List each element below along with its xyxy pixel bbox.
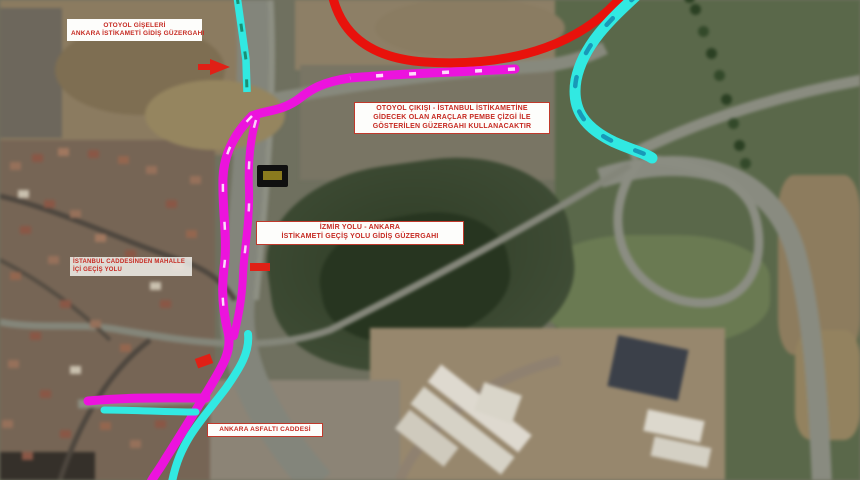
closure-arrow-1 (198, 59, 230, 75)
label-center-route-line1: İZMİR YOLU - ANKARA (261, 224, 459, 233)
route-cyan-top-segment (237, 0, 247, 92)
label-top-left: OTOYOL GİŞELERİ ANKARA İSTİKAMETİ GİDİŞ … (67, 19, 202, 41)
label-center-route-line2: İSTİKAMETİ GEÇİŞ YOLU GİDİŞ GÜZERGAHI (261, 233, 459, 242)
map-viewport[interactable]: OTOYOL GİŞELERİ ANKARA İSTİKAMETİ GİDİŞ … (0, 0, 860, 480)
label-detour-note-line1: OTOYOL ÇIKIŞI - İSTANBUL İSTİKAMETİNE (359, 105, 545, 114)
label-center-route: İZMİR YOLU - ANKARA İSTİKAMETİ GEÇİŞ YOL… (256, 221, 464, 245)
route-detour-magenta-right (234, 120, 256, 336)
route-cyan-lower-branch (104, 410, 196, 412)
label-detour-note-line3: GÖSTERİLEN GÜZERGAHI KULLANACAKTIR (359, 123, 545, 132)
label-street: ANKARA ASFALTI CADDESİ (207, 423, 323, 437)
label-detour-note: OTOYOL ÇIKIŞI - İSTANBUL İSTİKAMETİNE Gİ… (354, 102, 550, 134)
km-sign-icon (257, 165, 288, 187)
closure-arrow-2 (250, 263, 270, 271)
label-top-left-line1: OTOYOL GİŞELERİ (71, 22, 198, 30)
label-neighborhood-line2: İÇİ GEÇİŞ YOLU (73, 267, 189, 275)
closure-arrow-3 (195, 354, 213, 369)
label-street-line1: ANKARA ASFALTI CADDESİ (212, 426, 318, 434)
label-top-left-line2: ANKARA İSTİKAMETİ GİDİŞ GÜZERGAHI (71, 30, 198, 38)
label-neighborhood: İSTANBUL CADDESİNDEN MAHALLE İÇİ GEÇİŞ Y… (70, 257, 192, 276)
route-closed-red (332, 0, 622, 63)
route-detour-magenta-branch (88, 398, 206, 401)
label-detour-note-line2: GİDECEK OLAN ARAÇLAR PEMBE ÇİZGİ İLE (359, 114, 545, 123)
label-neighborhood-line1: İSTANBUL CADDESİNDEN MAHALLE (73, 259, 189, 267)
